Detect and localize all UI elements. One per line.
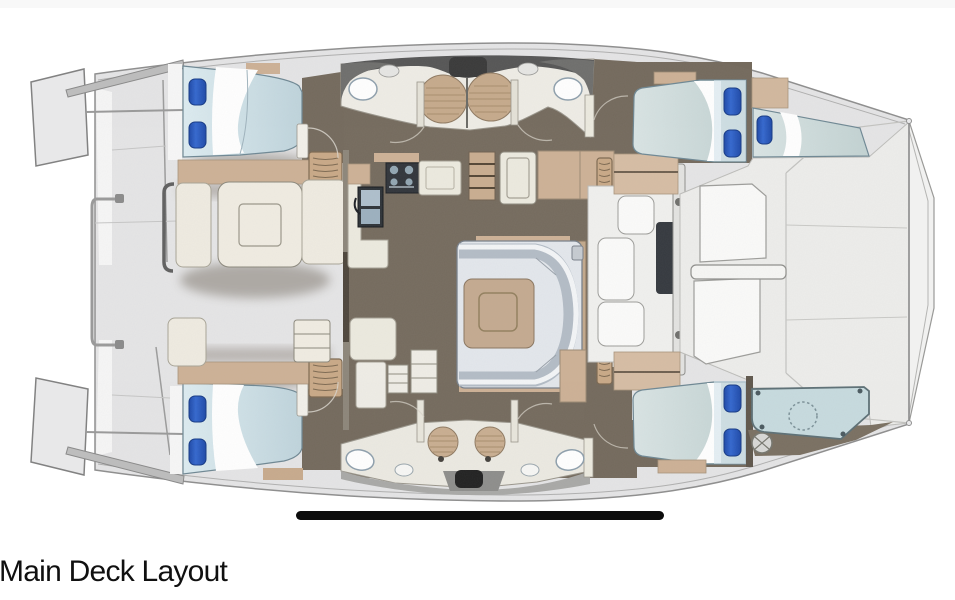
svg-text:Main Deck Layout: Main Deck Layout: [0, 555, 229, 588]
